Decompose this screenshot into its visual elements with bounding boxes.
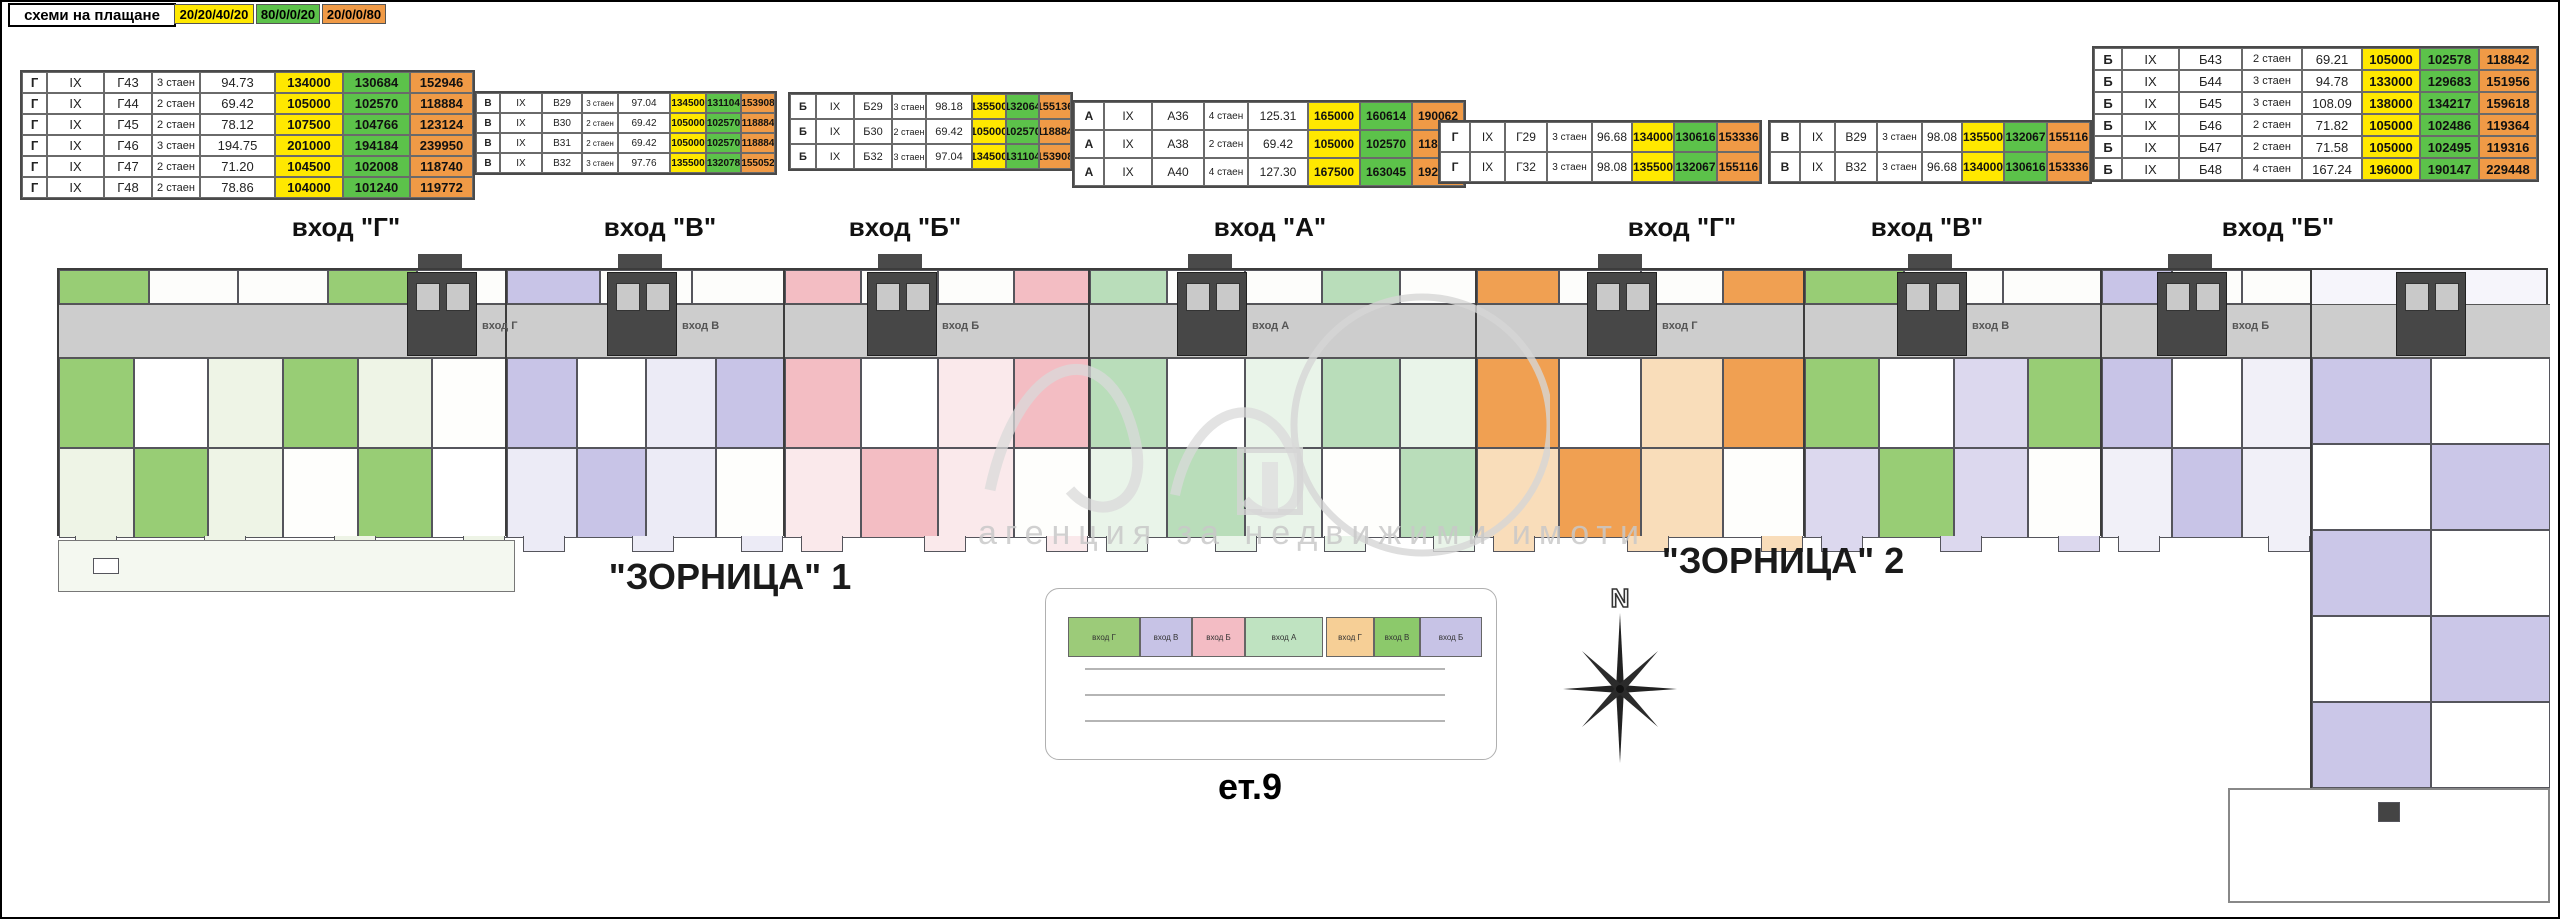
price-cell: В32	[542, 153, 582, 173]
parking-line	[1085, 720, 1445, 722]
plan-room	[861, 358, 937, 448]
price-cell: Г48	[104, 177, 152, 198]
price-cell: 98.08	[1592, 152, 1632, 182]
plan-room	[2431, 702, 2550, 788]
price-cell: IX	[2122, 114, 2179, 136]
price-cell: 194184	[343, 135, 410, 156]
price-row: ГIXГ433 стаен94.73134000130684152946	[22, 72, 473, 93]
site-entrance-block-5: вход Г	[1326, 617, 1374, 657]
plan-room	[2172, 448, 2242, 538]
plan-room	[283, 448, 358, 538]
price-cell: Г	[22, 135, 47, 156]
compass-north-icon: N	[1555, 583, 1685, 765]
floor-number-label: ет.9	[1218, 766, 1282, 808]
price-row: БIXБ443 стаен94.78133000129683151956	[2094, 70, 2537, 92]
plan-room	[1245, 270, 1322, 304]
price-cell: 3 стаен	[582, 93, 618, 113]
elevator-shaft	[446, 283, 470, 311]
price-cell: А	[1074, 102, 1104, 130]
price-cell: 167.24	[2302, 158, 2362, 180]
price-cell: Б44	[2179, 70, 2242, 92]
price-cell: 118884	[1039, 119, 1071, 144]
price-cell: 153908	[741, 93, 775, 113]
plan-room	[2312, 444, 2431, 530]
stair-core	[607, 272, 677, 356]
plan-entrance-label: вход Г	[1662, 320, 1697, 332]
price-cell: 102570	[1006, 119, 1039, 144]
price-cell: В	[476, 93, 500, 113]
price-cell: Б43	[2179, 48, 2242, 70]
plan-room	[2312, 530, 2431, 616]
plan-room	[1322, 270, 1399, 304]
elevator-shaft	[2196, 283, 2220, 311]
site-outline	[1045, 588, 1497, 760]
price-cell: 98.18	[926, 94, 972, 119]
terrace-left-detail	[93, 558, 119, 574]
price-row: ВIXВ323 стаен96.68134000130616153336	[1770, 152, 2090, 182]
stair-core	[1587, 272, 1657, 356]
price-cell: 94.73	[200, 72, 275, 93]
price-cell: Б	[790, 119, 816, 144]
price-cell: 134000	[1962, 152, 2004, 182]
elevator-shaft	[876, 283, 900, 311]
plan-room	[1559, 358, 1641, 448]
price-cell: 105000	[670, 113, 706, 133]
price-cell: 108.09	[2302, 92, 2362, 114]
price-row: ВIXВ293 стаен98.08135500132067155116	[1770, 122, 2090, 152]
elevator-shaft	[646, 283, 670, 311]
balcony	[801, 536, 843, 552]
price-cell: 153908	[1039, 144, 1071, 169]
plan-room	[2003, 270, 2102, 304]
price-cell: 105000	[670, 133, 706, 153]
plan-entrance-label: вход Б	[2232, 320, 2269, 332]
plan-room	[1014, 358, 1090, 448]
plan-entrance-label: вход Г	[482, 320, 517, 332]
price-cell: 3 стаен	[1547, 152, 1592, 182]
plan-room	[1090, 270, 1167, 304]
plan-corridor	[785, 304, 1090, 358]
price-cell: Б	[2094, 136, 2122, 158]
price-cell: 78.86	[200, 177, 275, 198]
price-cell: 132064	[1006, 94, 1039, 119]
stair-bump	[618, 254, 662, 268]
plan-room	[432, 358, 507, 448]
price-cell: 239950	[410, 135, 473, 156]
payment-scheme-2: 80/0/0/20	[256, 4, 320, 24]
price-cell: IX	[2122, 48, 2179, 70]
elevator-shaft	[2166, 283, 2190, 311]
plan-section-7	[2100, 268, 2310, 536]
price-row: АIXА364 стаен125.31165000160614190062	[1074, 102, 1464, 130]
stair-core	[2396, 272, 2466, 356]
price-cell: Г	[22, 114, 47, 135]
price-cell: 105000	[1308, 130, 1360, 158]
balcony	[632, 536, 674, 552]
price-cell: IX	[47, 156, 104, 177]
plan-room	[1400, 358, 1477, 448]
price-cell: 118884	[741, 113, 775, 133]
plan-room	[1723, 270, 1805, 304]
price-cell: 3 стаен	[2242, 92, 2302, 114]
plan-entrance-label: вход Б	[942, 320, 979, 332]
plan-room	[646, 358, 716, 448]
price-cell: 125.31	[1248, 102, 1308, 130]
price-row: ГIXГ323 стаен98.08135500132067155116	[1440, 152, 1760, 182]
price-cell: IX	[1470, 122, 1505, 152]
price-cell: 97.04	[618, 93, 670, 113]
plan-room	[432, 448, 507, 538]
plan-room	[1641, 358, 1723, 448]
price-cell: Г	[22, 72, 47, 93]
price-row: БIXБ432 стаен69.21105000102578118842	[2094, 48, 2537, 70]
price-cell: 190147	[2420, 158, 2479, 180]
plan-room	[507, 448, 577, 538]
price-cell: Г29	[1505, 122, 1547, 152]
plan-room	[134, 358, 209, 448]
price-table-3: БIXБ293 стаен98.18135500132064155136БIXБ…	[788, 92, 1073, 171]
plan-room	[716, 448, 786, 538]
price-cell: 138000	[2362, 92, 2420, 114]
price-cell: А	[1074, 130, 1104, 158]
plan-entrance-label: вход А	[1252, 320, 1289, 332]
entrance-header-6: вход "В"	[1871, 212, 1984, 243]
price-row: ГIXГ452 стаен78.12107500104766123124	[22, 114, 473, 135]
plan-room	[1477, 358, 1559, 448]
stair-core	[1897, 272, 1967, 356]
price-cell: Г	[22, 93, 47, 114]
plan-room	[1723, 358, 1805, 448]
price-cell: IX	[1800, 152, 1835, 182]
plan-room	[1400, 270, 1477, 304]
price-cell: В30	[542, 113, 582, 133]
price-cell: 133000	[2362, 70, 2420, 92]
plan-room	[1723, 448, 1805, 538]
plan-section-1	[57, 268, 505, 536]
price-cell: 94.78	[2302, 70, 2362, 92]
price-cell: 3 стаен	[1547, 122, 1592, 152]
price-cell: 102486	[2420, 114, 2479, 136]
balcony	[2268, 536, 2310, 552]
plan-room	[938, 358, 1014, 448]
price-cell: 105000	[2362, 114, 2420, 136]
price-cell: 130616	[2004, 152, 2047, 182]
stair-core	[867, 272, 937, 356]
price-cell: 131104	[706, 93, 741, 113]
price-cell: 130684	[343, 72, 410, 93]
price-cell: 155136	[1039, 94, 1071, 119]
plan-tower	[2310, 268, 2548, 788]
plan-room	[785, 358, 861, 448]
price-row: ГIXГ293 стаен96.68134000130616153336	[1440, 122, 1760, 152]
entrance-header-5: вход "Г"	[1628, 212, 1736, 243]
plan-room	[1090, 358, 1167, 448]
price-cell: 2 стаен	[152, 93, 200, 114]
plan-room	[646, 448, 716, 538]
price-row: ГIXГ482 стаен78.86104000101240119772	[22, 177, 473, 198]
stair-core	[1177, 272, 1247, 356]
price-cell: 96.68	[1922, 152, 1962, 182]
plan-entrance-label: вход В	[682, 320, 719, 332]
balcony	[741, 536, 783, 552]
plan-room	[2312, 616, 2431, 702]
price-cell: IX	[47, 93, 104, 114]
plan-room	[1879, 448, 1953, 538]
price-cell: 2 стаен	[2242, 48, 2302, 70]
plan-room	[861, 448, 937, 538]
price-cell: IX	[1470, 152, 1505, 182]
price-cell: А38	[1152, 130, 1204, 158]
price-cell: 96.68	[1592, 122, 1632, 152]
price-cell: 69.42	[926, 119, 972, 144]
price-cell: Г45	[104, 114, 152, 135]
plan-room	[577, 448, 647, 538]
price-row: БIXБ484 стаен167.24196000190147229448	[2094, 158, 2537, 180]
elevator-shaft	[2405, 283, 2429, 311]
price-cell: 131104	[1006, 144, 1039, 169]
price-cell: IX	[816, 144, 854, 169]
price-cell: 3 стаен	[1877, 152, 1922, 182]
terrace-right-detail	[2378, 802, 2400, 822]
price-cell: IX	[47, 72, 104, 93]
stair-bump	[1598, 254, 1642, 268]
price-table-6: ВIXВ293 стаен98.08135500132067155116ВIXВ…	[1768, 120, 2092, 184]
price-cell: Г43	[104, 72, 152, 93]
plan-room	[1641, 448, 1723, 538]
price-cell: 118884	[410, 93, 473, 114]
price-cell: Г	[1440, 152, 1470, 182]
building-title-1: "ЗОРНИЦА" 1	[609, 556, 851, 598]
price-cell: В	[1770, 122, 1800, 152]
price-table-1: ГIXГ433 стаен94.73134000130684152946ГIXГ…	[20, 70, 475, 200]
elevator-shaft	[1906, 283, 1930, 311]
price-cell: Б	[2094, 158, 2122, 180]
plan-section-6	[1803, 268, 2100, 536]
plan-room	[2431, 616, 2550, 702]
plan-room	[149, 270, 239, 304]
plan-section-3	[783, 268, 1088, 536]
plan-room	[1879, 358, 1953, 448]
price-cell: Б47	[2179, 136, 2242, 158]
price-cell: 102570	[1360, 130, 1412, 158]
price-cell: IX	[500, 113, 542, 133]
plan-room	[1014, 270, 1090, 304]
plan-room	[1167, 358, 1244, 448]
plan-room	[2242, 448, 2312, 538]
price-cell: 152946	[410, 72, 473, 93]
plan-section-4	[1088, 268, 1475, 536]
price-cell: Б30	[854, 119, 892, 144]
price-cell: 71.82	[2302, 114, 2362, 136]
price-cell: 135500	[670, 153, 706, 173]
price-cell: А36	[1152, 102, 1204, 130]
price-cell: IX	[47, 135, 104, 156]
plan-entrance-label: вход В	[1972, 320, 2009, 332]
site-entrance-block-2: вход В	[1140, 617, 1192, 657]
price-cell: 3 стаен	[1877, 122, 1922, 152]
plan-room	[692, 270, 785, 304]
price-cell: 105000	[2362, 48, 2420, 70]
price-cell: А40	[1152, 158, 1204, 186]
price-cell: В	[1770, 152, 1800, 182]
elevator-shaft	[616, 283, 640, 311]
price-cell: 167500	[1308, 158, 1360, 186]
stair-bump	[2168, 254, 2212, 268]
price-cell: 135500	[1632, 152, 1674, 182]
plan-section-2	[505, 268, 783, 536]
price-cell: 3 стаен	[152, 135, 200, 156]
elevator-shaft	[416, 283, 440, 311]
elevator-shaft	[1186, 283, 1210, 311]
stair-bump	[1908, 254, 1952, 268]
plan-room	[59, 358, 134, 448]
plan-room	[328, 270, 418, 304]
price-cell: Г	[22, 177, 47, 198]
price-cell: 134000	[275, 72, 343, 93]
price-cell: 3 стаен	[582, 153, 618, 173]
price-cell: 119364	[2479, 114, 2537, 136]
payment-scheme-1: 20/20/40/20	[174, 4, 254, 24]
balcony	[924, 536, 966, 552]
price-cell: IX	[1104, 158, 1152, 186]
price-table-5: ГIXГ293 стаен96.68134000130616153336ГIXГ…	[1438, 120, 1762, 184]
plan-room	[2312, 358, 2431, 444]
price-cell: Б46	[2179, 114, 2242, 136]
price-cell: В31	[542, 133, 582, 153]
price-cell: 153336	[1717, 122, 1760, 152]
plan-room	[1954, 358, 2028, 448]
price-cell: 97.76	[618, 153, 670, 173]
price-cell: 129683	[2420, 70, 2479, 92]
price-cell: IX	[1800, 122, 1835, 152]
price-cell: Б45	[2179, 92, 2242, 114]
price-cell: 134500	[670, 93, 706, 113]
price-cell: В	[476, 113, 500, 133]
stair-core	[2157, 272, 2227, 356]
price-cell: Б	[790, 144, 816, 169]
price-cell: Г46	[104, 135, 152, 156]
price-cell: 119316	[2479, 136, 2537, 158]
price-cell: 118884	[741, 133, 775, 153]
site-entrance-block-4: вход А	[1245, 617, 1323, 657]
price-table-4: АIXА364 стаен125.31165000160614190062АIX…	[1072, 100, 1466, 188]
terrace-left	[58, 540, 515, 592]
price-cell: 130616	[1674, 122, 1717, 152]
entrance-header-1: вход "Г"	[292, 212, 400, 243]
price-cell: 4 стаен	[2242, 158, 2302, 180]
price-cell: Г44	[104, 93, 152, 114]
price-row: ГIXГ442 стаен69.42105000102570118884	[22, 93, 473, 114]
price-cell: 69.42	[200, 93, 275, 114]
price-cell: 69.42	[1248, 130, 1308, 158]
plan-room	[1245, 358, 1322, 448]
price-row: БIXБ453 стаен108.09138000134217159618	[2094, 92, 2537, 114]
price-cell: 2 стаен	[152, 156, 200, 177]
plan-room	[358, 448, 433, 538]
price-cell: IX	[1104, 102, 1152, 130]
price-cell: 105000	[972, 119, 1006, 144]
price-cell: 155116	[1717, 152, 1760, 182]
plan-room	[507, 270, 600, 304]
price-cell: 135500	[972, 94, 1006, 119]
price-cell: 160614	[1360, 102, 1412, 130]
stair-core	[407, 272, 477, 356]
plan-room	[716, 358, 786, 448]
agency-watermark-text: агенция за недвижими имоти	[978, 514, 1647, 553]
price-row: ГIXГ472 стаен71.20104500102008118740	[22, 156, 473, 177]
price-cell: Б	[2094, 48, 2122, 70]
price-row: ВIXВ302 стаен69.42105000102570118884	[476, 113, 775, 133]
plan-room	[59, 270, 149, 304]
elevator-shaft	[2435, 283, 2459, 311]
price-cell: 132067	[1674, 152, 1717, 182]
price-cell: 155116	[2047, 122, 2090, 152]
price-cell: Б	[2094, 70, 2122, 92]
elevator-shaft	[1596, 283, 1620, 311]
price-cell: 201000	[275, 135, 343, 156]
price-row: БIXБ302 стаен69.42105000102570118884	[790, 119, 1071, 144]
price-cell: 104000	[275, 177, 343, 198]
plan-room	[2172, 358, 2242, 448]
plan-room	[1477, 270, 1559, 304]
price-cell: 102570	[343, 93, 410, 114]
site-entrance-block-6: вход В	[1374, 617, 1420, 657]
price-cell: 105000	[275, 93, 343, 114]
price-cell: В29	[542, 93, 582, 113]
price-cell: В29	[1835, 122, 1877, 152]
price-cell: 102570	[706, 113, 741, 133]
price-cell: 102008	[343, 156, 410, 177]
price-cell: 194.75	[200, 135, 275, 156]
plan-room	[2102, 448, 2172, 538]
balcony	[2118, 536, 2160, 552]
plan-room	[2242, 270, 2312, 304]
price-row: ГIXГ463 стаен194.75201000194184239950	[22, 135, 473, 156]
price-cell: IX	[816, 94, 854, 119]
price-cell: В	[476, 133, 500, 153]
price-cell: 134000	[1632, 122, 1674, 152]
plan-room	[938, 270, 1014, 304]
price-cell: Б29	[854, 94, 892, 119]
plan-room	[358, 358, 433, 448]
price-cell: 123124	[410, 114, 473, 135]
price-table-7: БIXБ432 стаен69.21105000102578118842БIXБ…	[2092, 46, 2539, 182]
parking-line	[1085, 668, 1445, 670]
price-cell: 107500	[275, 114, 343, 135]
price-cell: 78.12	[200, 114, 275, 135]
price-cell: 196000	[2362, 158, 2420, 180]
price-cell: В	[476, 153, 500, 173]
price-cell: Г	[1440, 122, 1470, 152]
price-cell: 2 стаен	[2242, 114, 2302, 136]
plan-room	[1954, 448, 2028, 538]
price-cell: 119772	[410, 177, 473, 198]
plan-room	[1805, 448, 1879, 538]
entrance-header-3: вход "Б"	[849, 212, 961, 243]
site-entrance-block-3: вход Б	[1192, 617, 1245, 657]
price-cell: 2 стаен	[582, 133, 618, 153]
price-row: БIXБ462 стаен71.82105000102486119364	[2094, 114, 2537, 136]
plan-room	[2028, 448, 2102, 538]
price-cell: 229448	[2479, 158, 2537, 180]
price-cell: Б	[790, 94, 816, 119]
price-table-2: ВIXВ293 стаен97.04134500131104153908ВIXВ…	[474, 91, 777, 175]
price-cell: 102578	[2420, 48, 2479, 70]
plan-room	[2431, 444, 2550, 530]
price-cell: 118740	[410, 156, 473, 177]
price-cell: 118842	[2479, 48, 2537, 70]
balcony	[523, 536, 565, 552]
